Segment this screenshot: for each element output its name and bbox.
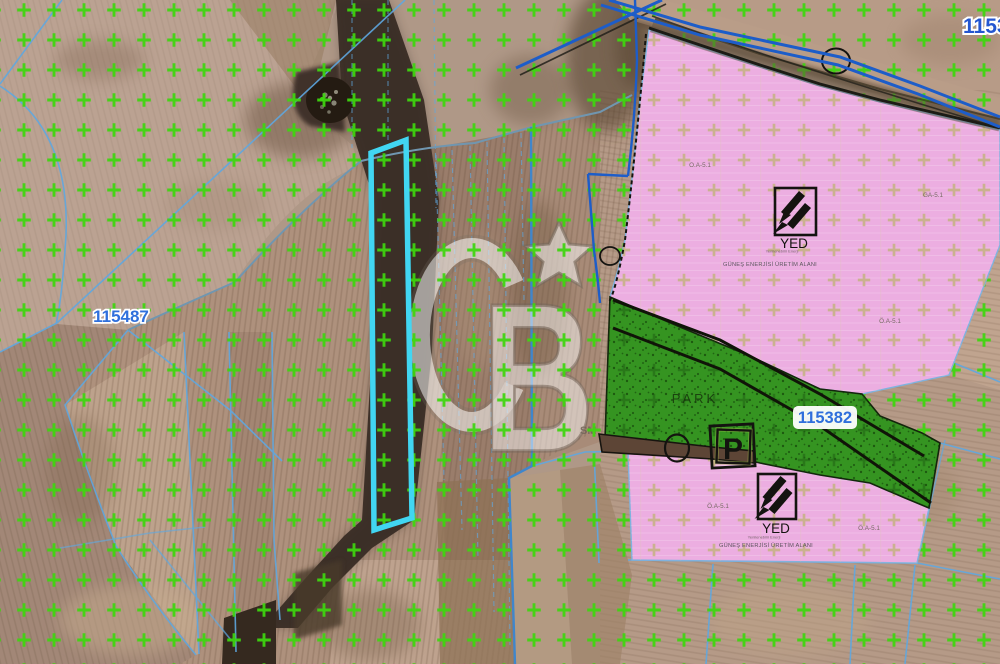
svg-text:115487: 115487 xyxy=(93,307,149,326)
svg-text:Ö.A-5.1: Ö.A-5.1 xyxy=(707,502,729,510)
svg-text:GA-5.1: GA-5.1 xyxy=(923,192,943,199)
svg-text:115382: 115382 xyxy=(798,409,852,427)
svg-text:Ö.A-5.1: Ö.A-5.1 xyxy=(879,317,901,325)
svg-text:GÜNEŞ ENERJİSİ ÜRETİM ALANI: GÜNEŞ ENERJİSİ ÜRETİM ALANI xyxy=(719,542,813,549)
svg-text:11538: 11538 xyxy=(963,15,1000,38)
svg-text:P: P xyxy=(723,433,743,466)
svg-text:GÜNEŞ ENERJİSİ ÜRETİM ALANI: GÜNEŞ ENERJİSİ ÜRETİM ALANI xyxy=(723,261,817,268)
svg-text:Ö.A-5.1: Ö.A-5.1 xyxy=(858,524,880,532)
svg-text:O.A-5.1: O.A-5.1 xyxy=(689,162,711,169)
svg-text:PARK: PARK xyxy=(672,391,718,406)
svg-text:Yenilenebilir Enerji: Yenilenebilir Enerji xyxy=(766,249,799,254)
svg-text:Yenilenebilir Enerji: Yenilenebilir Enerji xyxy=(748,535,781,540)
